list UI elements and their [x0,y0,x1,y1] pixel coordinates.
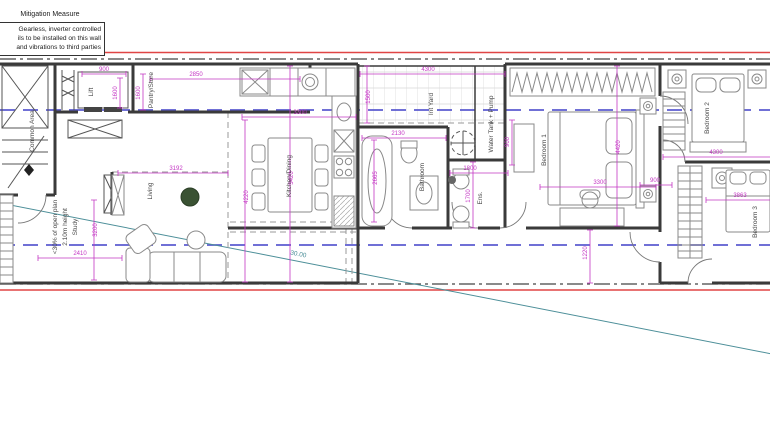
bedroom2-furniture [663,70,766,152]
dimension-label: 2130 [391,131,405,137]
stairwell [2,66,48,188]
room-label: Bathroom [419,163,426,191]
dimension-label: 3300 [593,180,607,186]
note-line: and vibrations to third parties [0,43,101,52]
room-label: Water Tank + Pump [488,95,495,152]
room-label: Lift [88,87,95,96]
room-label: Ens. [477,191,484,204]
dimension-label: 1600 [136,86,142,100]
mitigation-note-box: Gearless, inverter controlled ils to be … [0,22,105,56]
room-label: Bedroom 2 [704,102,711,134]
dimension-label: 3192 [169,166,183,172]
dimension-label: 1600 [113,86,119,100]
room-label: Kitchen/Dining [286,155,293,197]
dimension-label: 900 [505,136,511,147]
dimension-label: 900 [99,67,110,73]
room-label: Int Yard [428,93,435,116]
dimension-label: 4220 [244,190,250,204]
room-label: <30% of open plan [52,199,59,254]
dimension-label: 3300 [293,110,307,116]
dimension-label: 2410 [73,251,87,257]
room-label: Common Area [29,110,36,152]
note-line: Gearless, inverter controlled [0,25,101,34]
dimension-label: 4420 [616,140,622,154]
room-label: Bedroom 3 [752,206,759,238]
note-title: Mitigation Measure [0,11,100,18]
dimension-label: 1700 [466,189,472,203]
dimension-label: 1220 [583,246,589,260]
room-label: Pantry/Store [148,72,155,109]
floor-plan-drawing: 9001600160028503192330042205420241032004… [0,0,770,430]
note-line: ils to be installed on this wall [0,34,101,43]
survey-labels: 30.00 [290,250,308,260]
dimension-label: 2665 [373,171,379,185]
dimension-label: 4300 [709,150,723,156]
living-furniture [0,175,226,283]
dimension-label: 2850 [189,72,203,78]
dimension-label: 3863 [733,193,747,199]
room-label: Bedroom 1 [541,134,548,166]
water-tank-symbol [451,131,475,155]
room-label: Study [72,218,79,235]
room-label: Living [147,182,154,199]
dimension-label: 1800 [463,166,477,172]
room-label: 2.10m height [62,208,69,246]
bedroom1-furniture [510,68,656,226]
dimension-label: 1500 [366,90,372,104]
floor-plan-canvas: 9001600160028503192330042205420241032004… [0,0,770,430]
dimension-label: 3200 [93,223,99,237]
dimension-label: 4300 [421,67,435,73]
dimension-label: 900 [650,178,661,184]
survey-label: 30.00 [290,250,308,260]
